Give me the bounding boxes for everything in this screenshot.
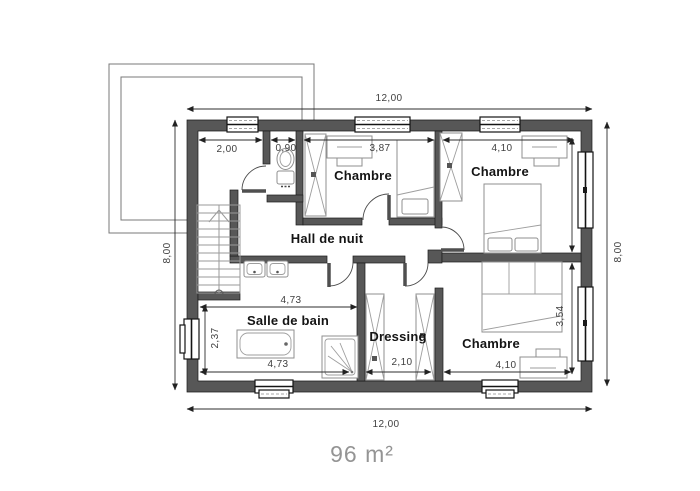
dim-right: 8,00 — [613, 241, 624, 262]
floor-plan-drawing: 12,00 12,00 8,00 8,00 — [0, 0, 700, 491]
dim-bedroom2-width: 4,10 — [491, 143, 512, 154]
dim-left: 8,00 — [162, 242, 173, 263]
wardrobe — [440, 133, 462, 201]
dim-top: 12,00 — [375, 93, 402, 104]
sink — [267, 261, 288, 277]
dim-bathroom-depth: 2,37 — [210, 327, 221, 348]
dim-wc-width: 0,90 — [275, 143, 296, 154]
room-label-bedroom-top-left: Chambre — [334, 168, 392, 183]
bed — [482, 262, 562, 332]
bed — [484, 184, 541, 253]
window — [355, 117, 410, 132]
dim-bedroom3-depth: 3,54 — [555, 305, 566, 326]
room-label-bedroom-bottom-right: Chambre — [462, 336, 520, 351]
dim-bedroom1-width: 3,87 — [369, 143, 390, 154]
dim-storage-width: 2,00 — [216, 144, 237, 155]
window — [578, 152, 593, 228]
dim-bathroom-top-width: 4,73 — [280, 295, 301, 306]
area-label: 96 m² — [330, 441, 394, 467]
window — [482, 380, 518, 398]
sink — [244, 261, 265, 277]
window — [578, 287, 593, 361]
window — [480, 117, 520, 132]
window — [227, 117, 258, 132]
room-label-dressing: Dressing — [369, 329, 426, 344]
window — [255, 380, 293, 398]
room-label-bedroom-top-right: Chambre — [471, 164, 529, 179]
dim-bathroom-bottom-width: 4,73 — [267, 359, 288, 370]
floor-plan-page: 12,00 12,00 8,00 8,00 — [0, 0, 700, 491]
room-label-night-hall: Hall de nuit — [291, 231, 364, 246]
dim-dressing-width: 2,10 — [391, 357, 412, 368]
dim-bottom: 12,00 — [372, 419, 399, 430]
dim-bedroom3-width: 4,10 — [495, 360, 516, 371]
bed — [397, 140, 434, 217]
wardrobe — [305, 134, 326, 216]
room-label-bathroom: Salle de bain — [247, 313, 329, 328]
window — [180, 319, 199, 359]
bathtub — [237, 330, 294, 358]
